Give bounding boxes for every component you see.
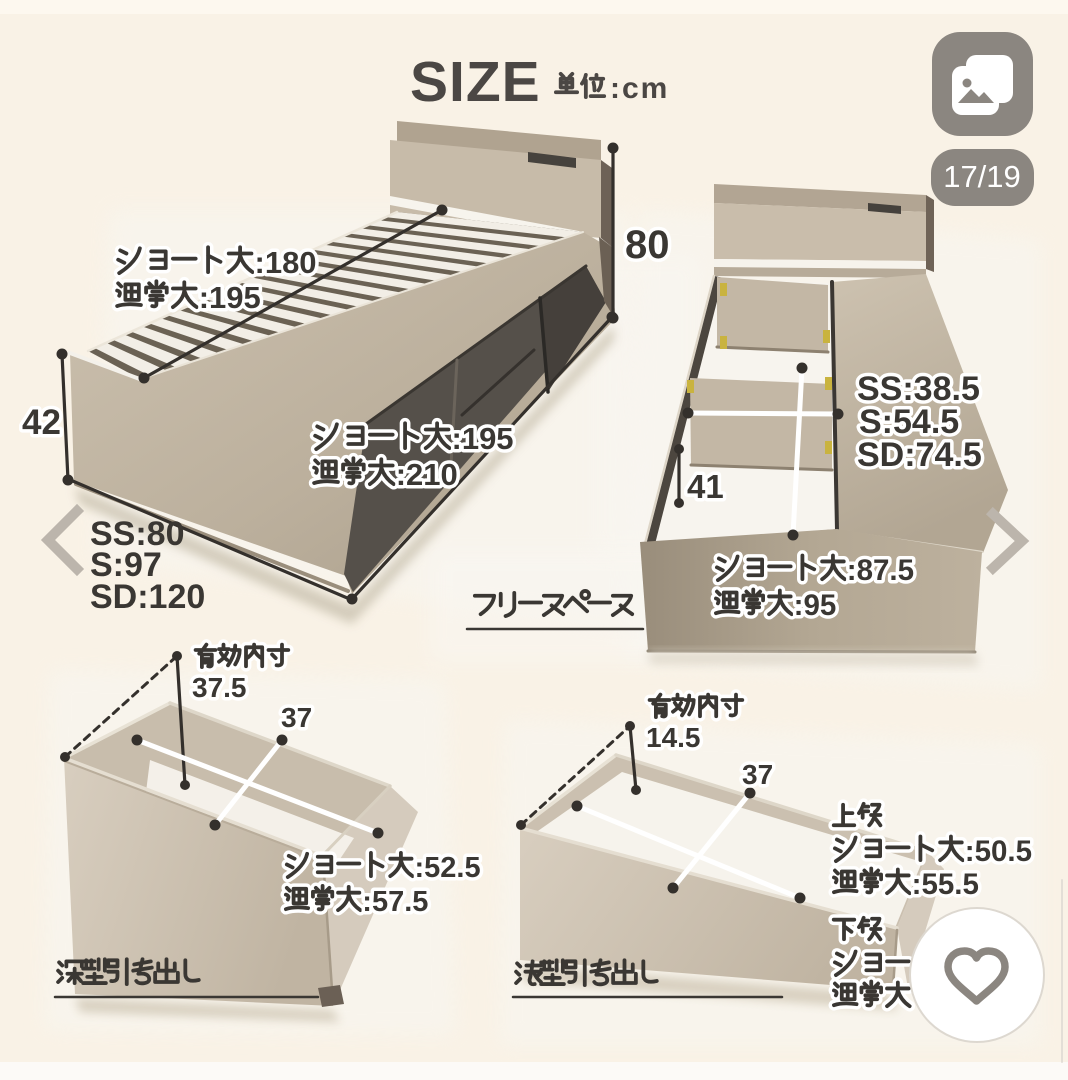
svg-text::95: :95: [794, 589, 837, 622]
svg-text::195: :195: [452, 421, 514, 456]
svg-text:37.5: 37.5: [192, 672, 247, 703]
svg-text::87.5: :87.5: [847, 554, 914, 587]
svg-text::cm: :cm: [610, 72, 669, 105]
svg-text::210: :210: [396, 457, 458, 492]
svg-text::57.5: :57.5: [362, 886, 428, 918]
svg-text:41: 41: [687, 468, 724, 505]
svg-text::180: :180: [255, 245, 317, 280]
svg-text:37: 37: [742, 759, 773, 790]
svg-text:17/19: 17/19: [943, 159, 1021, 194]
svg-text:14.5: 14.5: [646, 722, 701, 753]
svg-text:SD:74.5: SD:74.5: [857, 436, 982, 474]
svg-text:37: 37: [281, 702, 312, 733]
svg-text::50.5: :50.5: [965, 835, 1032, 868]
svg-text:80: 80: [625, 223, 670, 267]
svg-text::195: :195: [199, 280, 261, 315]
svg-text:SD:120: SD:120: [90, 578, 205, 616]
svg-text:42: 42: [22, 403, 61, 442]
svg-text::52.5: :52.5: [415, 852, 481, 884]
svg-text::55.5: :55.5: [912, 868, 979, 901]
svg-text:SIZE: SIZE: [410, 50, 541, 114]
